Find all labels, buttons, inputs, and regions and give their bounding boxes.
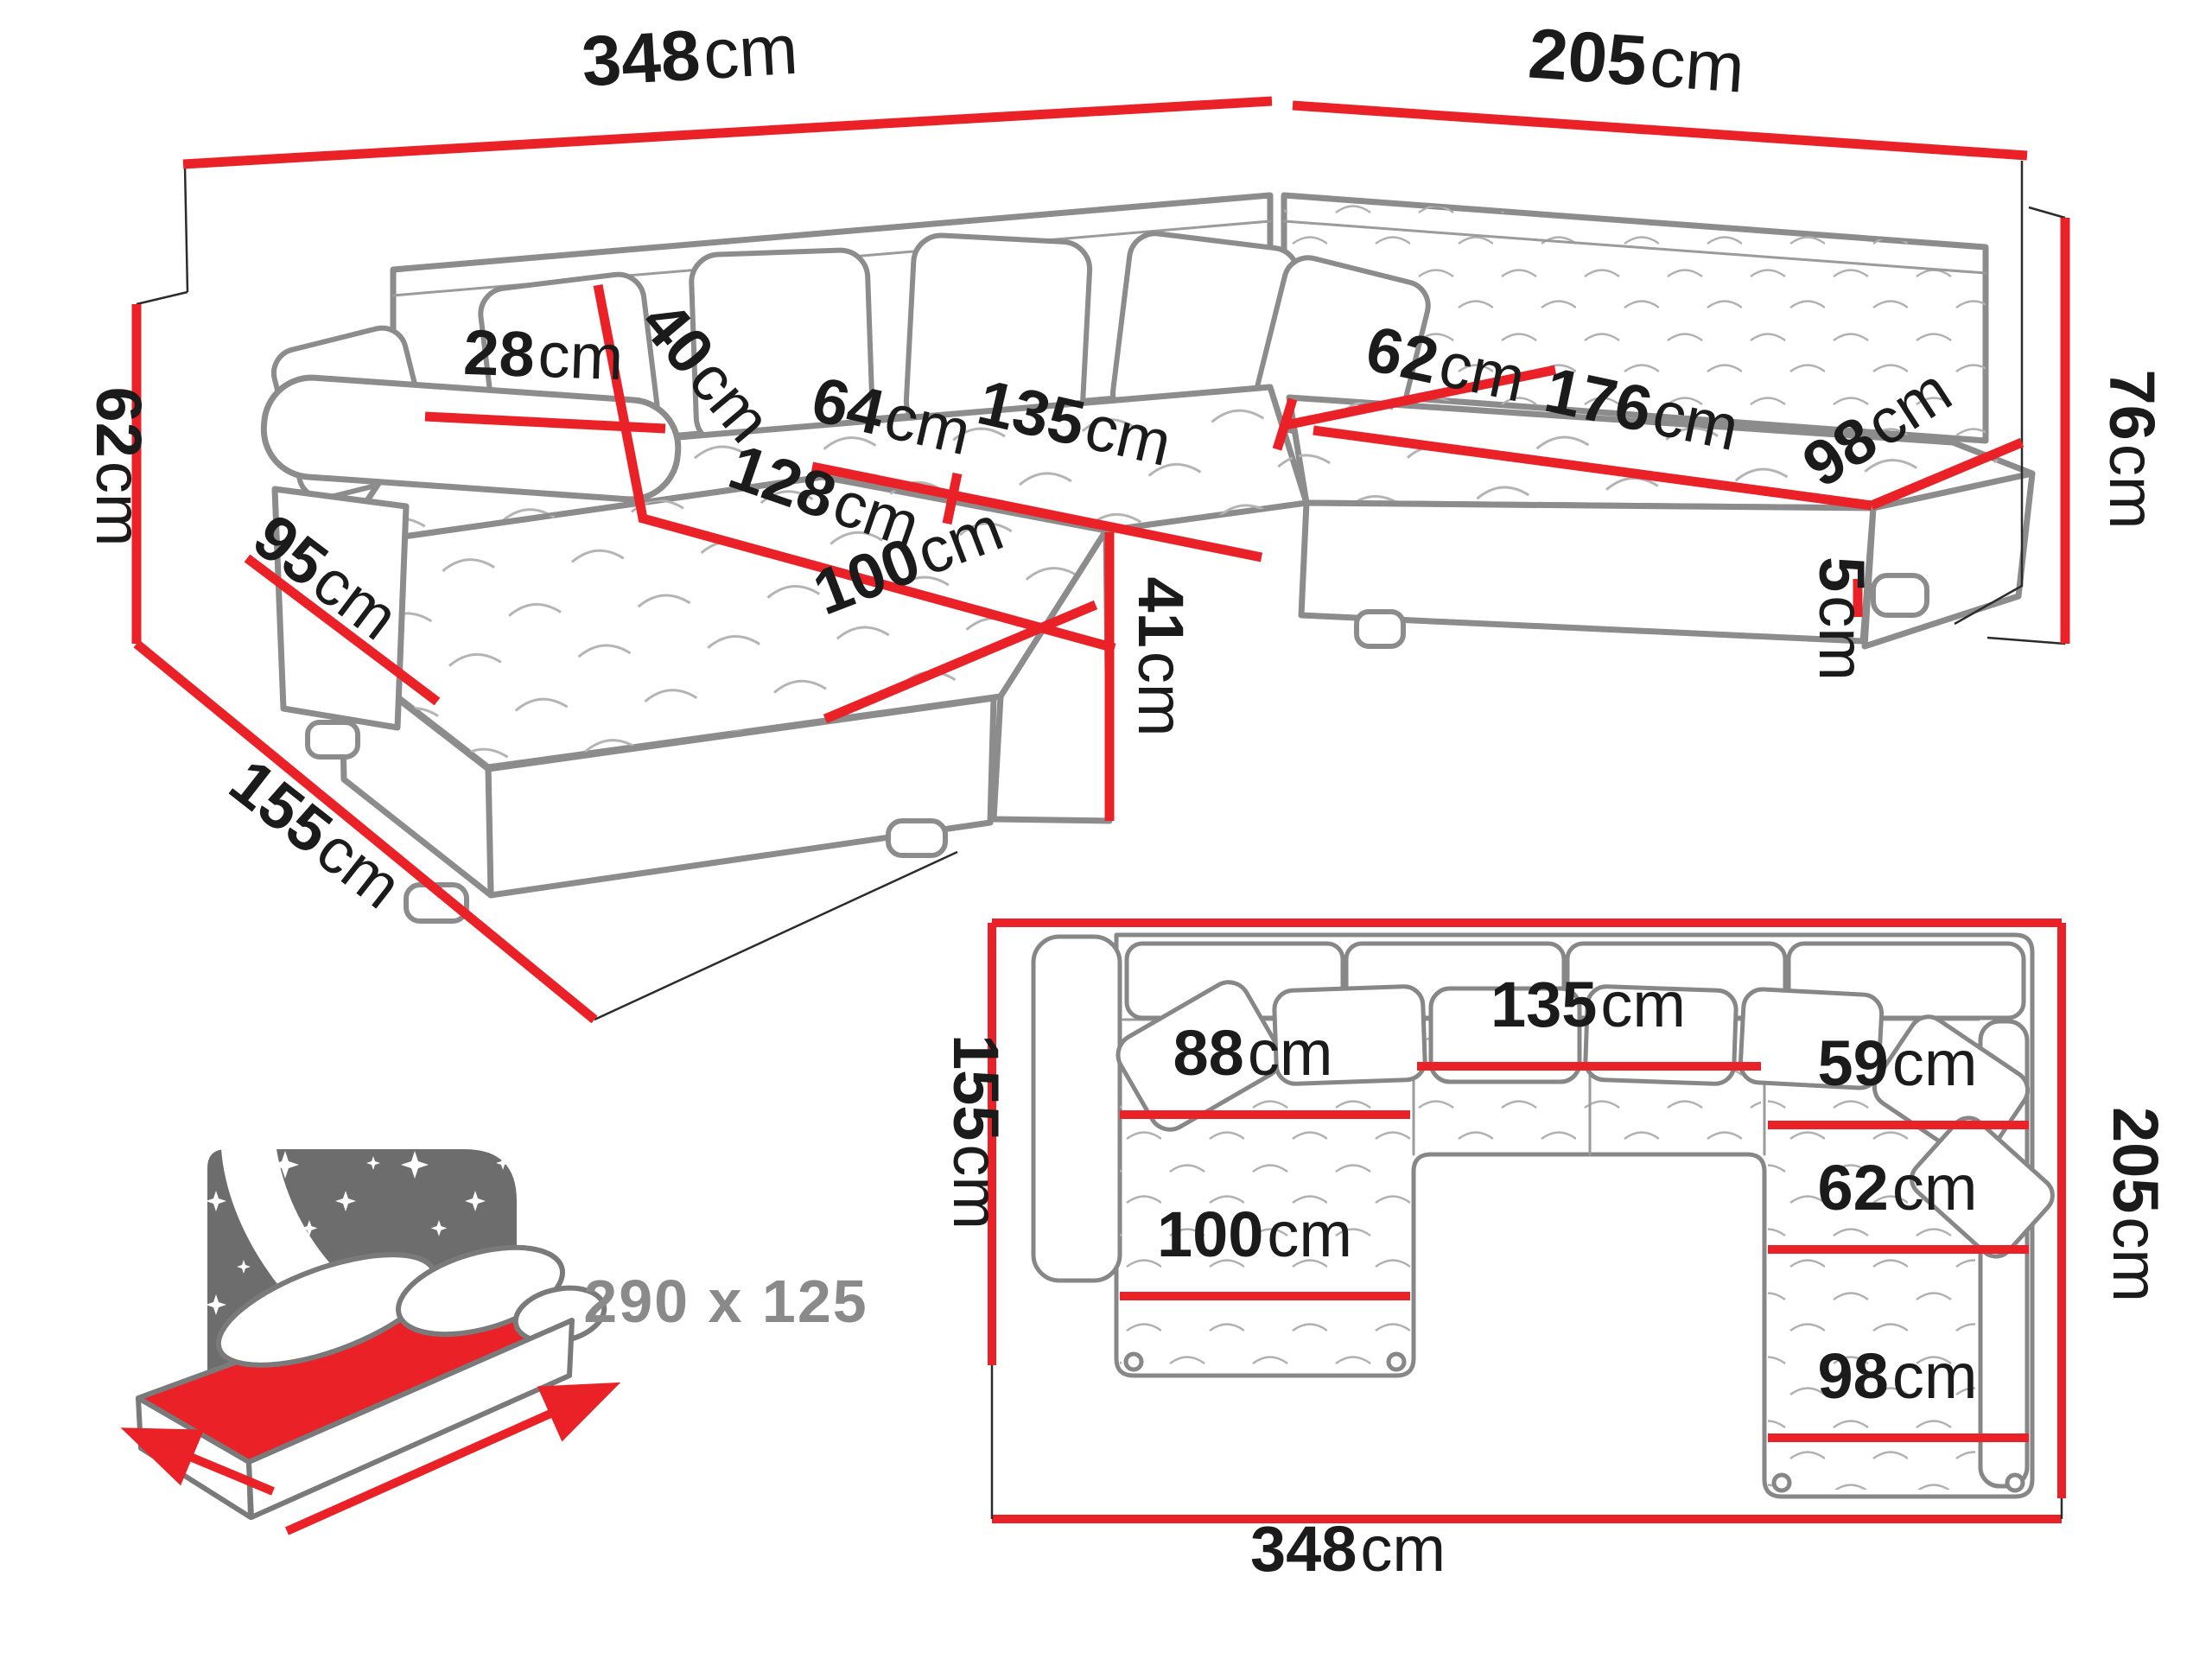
plan-foot (1389, 1354, 1404, 1370)
dim-label-plan-right-depth-mid: 62cm (1818, 1152, 1978, 1224)
sleeping-dimensions-label: 290 x 125 (583, 1268, 868, 1335)
dim-label-plan-right-depth: 205cm (2100, 1107, 2171, 1302)
dim-line-right-back-width (1293, 105, 2027, 156)
dim-label-leg-height: 5cm (1806, 556, 1878, 681)
dim-label-plan-right-width-front: 98cm (1818, 1340, 1978, 1412)
plan-armrest (1033, 937, 1120, 1281)
dim-label-plan-right-depth-back: 59cm (1818, 1027, 1978, 1099)
dim-label-total-height: 76cm (2096, 370, 2168, 530)
guide-line (185, 166, 188, 292)
sofa-perspective-drawing (261, 195, 2032, 921)
dim-label-armrest-height: 62cm (83, 387, 155, 547)
perspective-view: 348cm 205cm 76cm 62cm 155cm 95cm 28cm 40… (83, 10, 2168, 1020)
plan-foot (1774, 1475, 1789, 1491)
sofa-leg (888, 821, 945, 855)
dim-label-plan-left-seat-length: 88cm (1173, 1017, 1333, 1089)
guide-line (2029, 207, 2065, 218)
plan-view: 155cm 205cm 348cm 88cm 135cm 59cm 62cm 9… (940, 923, 2171, 1585)
sofa-leg (308, 722, 358, 757)
dim-label-right-back-width: 205cm (1526, 14, 1747, 107)
dim-label-armrest-width: 28cm (462, 316, 625, 393)
dim-label-back-width: 348cm (580, 10, 800, 102)
sofa-leg (1357, 612, 1403, 646)
dim-line-back-width (183, 101, 1272, 164)
sofa-leg (1873, 575, 1927, 615)
dim-label-plan-middle-seat-width: 135cm (1491, 969, 1686, 1040)
plan-foot (2007, 1475, 2023, 1491)
sleeping-function-icon (137, 1149, 609, 1531)
diagram-canvas: 348cm 205cm 76cm 62cm 155cm 95cm 28cm 40… (0, 0, 2212, 1659)
guide-line (594, 852, 957, 1020)
dim-label-plan-chaise-width: 100cm (1157, 1198, 1352, 1270)
plan-foot (1126, 1354, 1141, 1370)
dim-label-plan-total-width: 348cm (1250, 1513, 1446, 1585)
dim-label-plan-left-depth: 155cm (940, 1034, 1012, 1230)
sofa-dimension-diagram: 348cm 205cm 76cm 62cm 155cm 95cm 28cm 40… (0, 0, 2212, 1659)
dim-label-seat-height: 41cm (1125, 577, 1197, 737)
guide-line (137, 292, 188, 304)
guide-line (1987, 638, 2065, 644)
